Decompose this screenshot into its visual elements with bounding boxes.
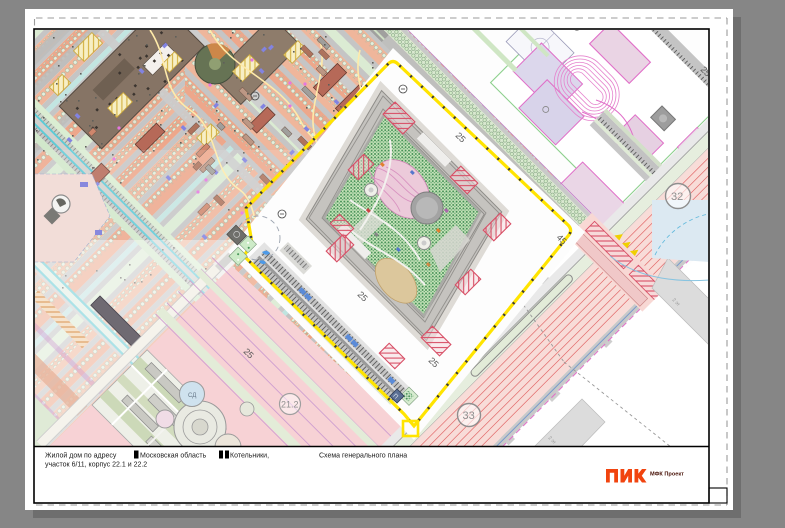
svg-text:32: 32 xyxy=(671,191,683,203)
svg-text:21.2: 21.2 xyxy=(281,400,299,410)
svg-text:СД: СД xyxy=(188,393,196,399)
svg-text:Жилой дом по адресу: Жилой дом по адресу xyxy=(45,452,117,460)
svg-text:Схема генерального плана: Схема генерального плана xyxy=(319,453,407,460)
svg-text:Котельники,: Котельники, xyxy=(230,453,269,460)
svg-text:Московская область: Московская область xyxy=(140,452,207,460)
svg-text:МФК Проект: МФК Проект xyxy=(650,472,684,478)
svg-text:участок 6/11, корпус 22.1 и 22: участок 6/11, корпус 22.1 и 22.2 xyxy=(45,462,147,469)
svg-text:33: 33 xyxy=(463,410,475,422)
